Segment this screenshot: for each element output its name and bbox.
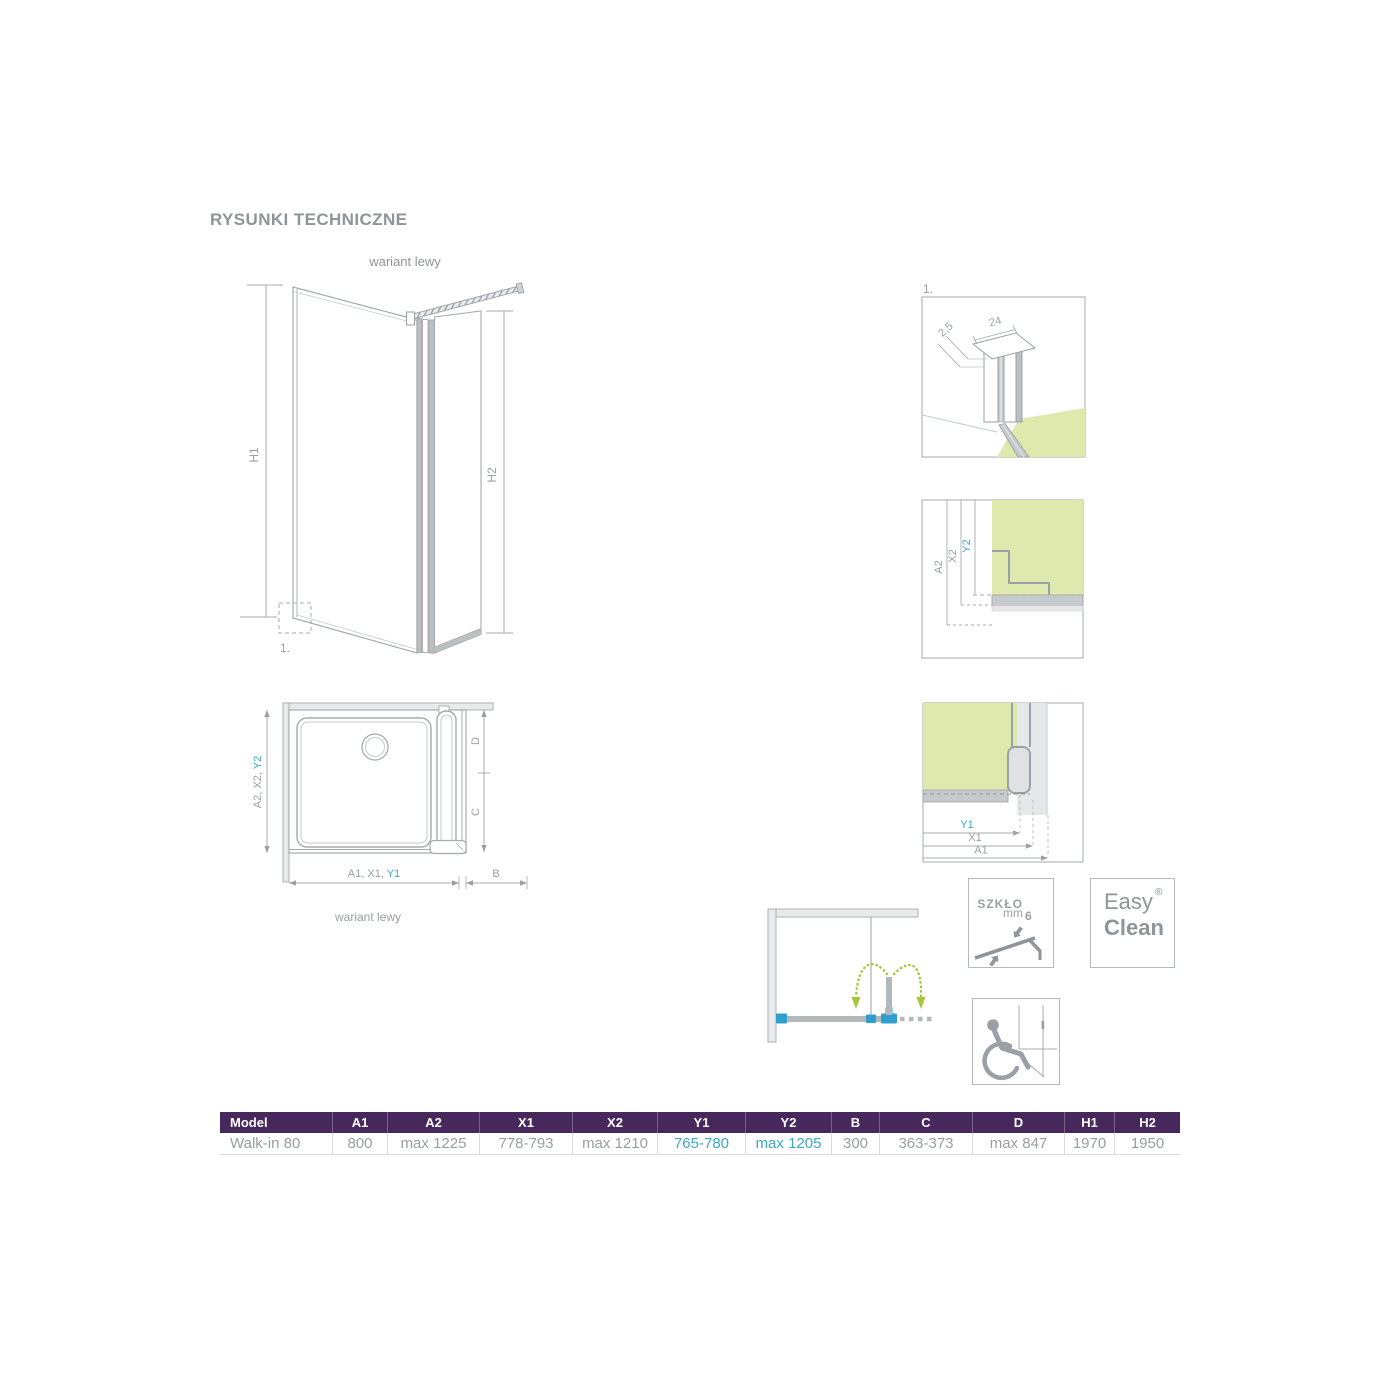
detail-wall-section: A2 X2 Y2 bbox=[915, 495, 1095, 665]
registered-icon: ® bbox=[1155, 887, 1162, 898]
detail-floor-section: Y1 X1 A1 bbox=[915, 695, 1095, 870]
value-model: Walk-in 80 bbox=[220, 1133, 332, 1154]
dim-d-label: D bbox=[470, 737, 482, 745]
dim-bottom-gray: A1, X1, bbox=[348, 868, 387, 880]
perspective-drawing: H1 H2 1. bbox=[230, 270, 530, 660]
easyclean-badge: Easy ® Clean bbox=[1090, 878, 1175, 968]
wall-profile bbox=[417, 319, 435, 654]
value-y2: max 1205 bbox=[745, 1133, 831, 1154]
glass-pane-icon bbox=[975, 925, 1040, 966]
glass-area bbox=[992, 500, 1083, 595]
detail2-x2-label: X2 bbox=[947, 549, 959, 562]
wheelchair-icon bbox=[973, 999, 1058, 1083]
spec-table-row: Walk-in 80 800 max 1225 778-793 max 1210… bbox=[220, 1133, 1180, 1155]
easyclean-word2: Clean bbox=[1104, 915, 1164, 941]
h1-label: H1 bbox=[247, 447, 261, 463]
dim-left-teal: Y2 bbox=[252, 756, 264, 769]
dim-bottom-label: A1, X1, Y1 bbox=[348, 868, 400, 880]
value-h1: 1970 bbox=[1064, 1133, 1114, 1154]
glass-6mm-icon: SZKŁO mm 6 bbox=[969, 879, 1052, 966]
value-d: max 847 bbox=[972, 1133, 1064, 1154]
value-x1: 778-793 bbox=[479, 1133, 572, 1154]
detail3-a1-label: A1 bbox=[974, 845, 987, 857]
dim-c-label: C bbox=[470, 808, 482, 816]
h2-dimension: H2 bbox=[485, 311, 513, 633]
detail3-y1-label: Y1 bbox=[960, 819, 973, 831]
plan-view-drawing: A2, X2, Y2 D C A1, X1, Y1 B waria bbox=[230, 690, 550, 940]
dim-left-label: A2, X2, Y2 bbox=[252, 756, 264, 808]
dim-b-label: B bbox=[492, 868, 499, 880]
plan-caption: wariant lewy bbox=[334, 910, 401, 924]
h1-dimension: H1 bbox=[240, 285, 283, 617]
glass-unit: mm bbox=[1003, 906, 1023, 920]
return-panel bbox=[434, 311, 482, 654]
pivot-panel bbox=[886, 977, 892, 1015]
glass-value: 6 bbox=[1025, 909, 1032, 923]
header-model: Model bbox=[220, 1112, 332, 1133]
value-c: 363-373 bbox=[879, 1133, 972, 1154]
detail2-y2-label: Y2 bbox=[961, 539, 973, 552]
detail2-a2-label: A2 bbox=[933, 560, 945, 573]
accessibility-badge bbox=[972, 998, 1060, 1085]
dim-d-c: D C bbox=[470, 710, 490, 852]
header-b: B bbox=[831, 1112, 879, 1133]
header-a2: A2 bbox=[387, 1112, 479, 1133]
dim-a2x2y2: A2, X2, Y2 bbox=[252, 710, 270, 853]
value-b: 300 bbox=[831, 1133, 879, 1154]
page-title: RYSUNKI TECHNICZNE bbox=[210, 210, 407, 230]
header-h1: H1 bbox=[1064, 1112, 1114, 1133]
header-x1: X1 bbox=[479, 1112, 572, 1133]
swing-arrow-left-icon bbox=[852, 997, 861, 1009]
value-y1: 765-780 bbox=[657, 1133, 745, 1154]
detail1-label: 1. bbox=[923, 282, 933, 296]
shower-tray bbox=[297, 718, 431, 847]
perspective-caption: wariant lewy bbox=[340, 254, 470, 269]
header-y1: Y1 bbox=[657, 1112, 745, 1133]
easyclean-word1: Easy bbox=[1104, 889, 1153, 915]
detail3-x1-label: X1 bbox=[968, 832, 981, 844]
bottom-profile-bar bbox=[992, 595, 1083, 611]
h2-label: H2 bbox=[485, 467, 499, 483]
glass-area bbox=[923, 703, 1017, 790]
technical-drawing-page: RYSUNKI TECHNICZNE wariant lewy H1 bbox=[0, 0, 1400, 1400]
value-a2: max 1225 bbox=[387, 1133, 479, 1154]
header-c: C bbox=[879, 1112, 972, 1133]
walkin-glass-panel bbox=[293, 287, 417, 653]
spec-table-header: Model A1 A2 X1 X2 Y1 Y2 B C D H1 H2 bbox=[220, 1112, 1180, 1133]
header-d: D bbox=[972, 1112, 1064, 1133]
wall-bracket bbox=[407, 312, 415, 325]
header-x2: X2 bbox=[572, 1112, 657, 1133]
dim-a1x1y1-b: A1, X1, Y1 B bbox=[289, 868, 527, 889]
header-a1: A1 bbox=[332, 1112, 387, 1133]
detail-wall-profile-3d: 1. 24 2,5 bbox=[915, 280, 1095, 465]
glass-plan-profile bbox=[430, 706, 466, 854]
value-a1: 800 bbox=[332, 1133, 387, 1154]
swing-arrow-right-icon bbox=[917, 997, 926, 1009]
glass-6mm-badge: SZKŁO mm 6 bbox=[968, 878, 1054, 968]
header-h2: H2 bbox=[1114, 1112, 1180, 1133]
spec-table: Model A1 A2 X1 X2 Y1 Y2 B C D H1 H2 Walk… bbox=[220, 1112, 1180, 1155]
dim-left-gray: A2, X2, bbox=[252, 769, 264, 808]
header-y2: Y2 bbox=[745, 1112, 831, 1133]
value-h2: 1950 bbox=[1114, 1133, 1180, 1154]
detail-callout-label: 1. bbox=[280, 641, 290, 655]
swing-schematic bbox=[755, 900, 940, 1050]
value-x2: max 1210 bbox=[572, 1133, 657, 1154]
dim-bottom-teal: Y1 bbox=[387, 868, 400, 880]
